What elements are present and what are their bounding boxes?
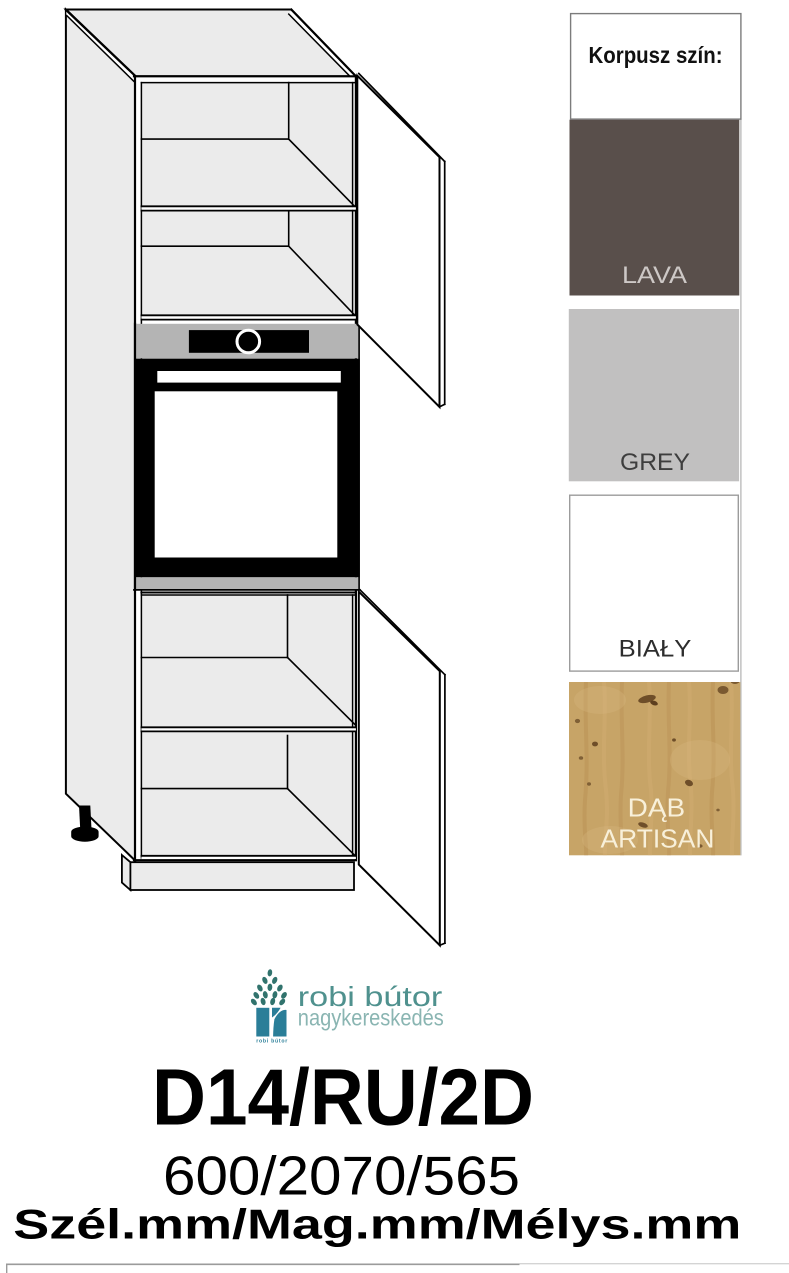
svg-text:nagykereskedés: nagykereskedés [298,1005,444,1031]
svg-text:D14/RU/2D: D14/RU/2D [152,1053,534,1142]
svg-text:600/2070/565: 600/2070/565 [163,1144,520,1206]
svg-text:BIAŁY: BIAŁY [619,635,692,662]
svg-text:ARTISAN: ARTISAN [601,824,715,854]
svg-text:Korpusz szín:: Korpusz szín: [589,42,723,68]
svg-text:DĄB: DĄB [628,793,686,823]
svg-text:Szél.mm/Mag.mm/Mélys.mm: Szél.mm/Mag.mm/Mélys.mm [13,1201,741,1248]
svg-text:LAVA: LAVA [622,262,687,289]
svg-text:GREY: GREY [620,449,690,476]
svg-text:robi bútor: robi bútor [256,1039,287,1045]
